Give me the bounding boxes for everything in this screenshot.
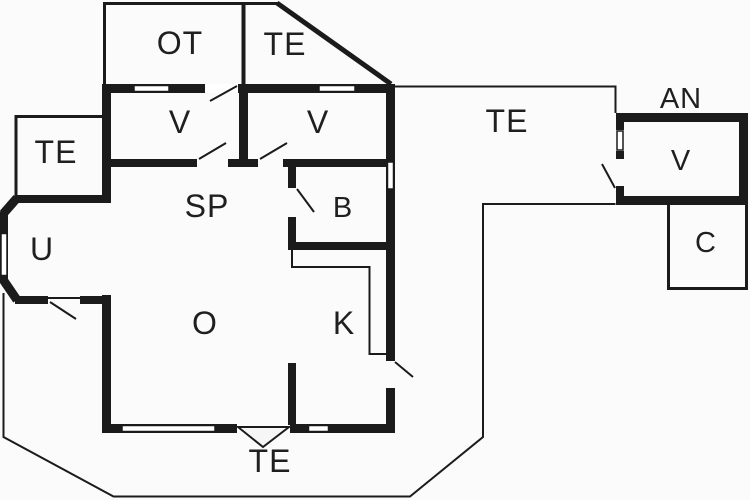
room-label-k: K [333, 305, 355, 341]
wall-right-1 [386, 84, 395, 361]
wall-v-band-1 [102, 159, 197, 167]
window-k-bottom [309, 426, 329, 432]
window-b-right [388, 162, 394, 189]
window-v-right-top [319, 86, 355, 92]
room-label-ot: OT [157, 25, 203, 61]
room-label-o: O [192, 305, 218, 341]
room-label-sp: SP [185, 188, 230, 224]
window-v-left-top [134, 86, 169, 92]
room-label-te-bottom: TE [249, 443, 292, 479]
wall-u-top [15, 195, 111, 203]
wall-an-bottom [616, 196, 748, 205]
wall-v-middle [239, 84, 248, 167]
floor-plan: OT TE V V TE SP B U O K TE TE AN V C [0, 0, 750, 500]
wall-an-left-3 [616, 186, 624, 205]
wall-top-2 [238, 84, 395, 93]
wall-kitchen-stub [288, 363, 296, 425]
room-label-c: C [695, 227, 717, 259]
wall-an-right [739, 113, 748, 205]
room-label-an: AN [660, 83, 702, 115]
room-label-v-right: V [307, 104, 329, 140]
room-label-v-annex: V [671, 145, 691, 177]
room-label-v-left: V [169, 104, 191, 140]
wall-bottom-2 [290, 424, 395, 433]
window-u-left [1, 234, 7, 276]
room-label-te-left: TE [35, 134, 78, 170]
room-label-u: U [30, 231, 54, 267]
room-label-te-main: TE [486, 103, 529, 139]
wall-left-upper [102, 84, 111, 202]
wall-u-bottom-2 [80, 296, 111, 304]
floor-plan-drawing: OT TE V V TE SP B U O K TE TE AN V C [0, 0, 750, 500]
wall-b-bottom [288, 242, 386, 250]
wall-b-left-1 [288, 159, 296, 188]
window-o-bottom [122, 426, 215, 432]
room-label-te-top: TE [264, 26, 307, 62]
wall-an-left-1 [616, 113, 624, 130]
wall-left-lower [102, 295, 111, 433]
wall-an-left-2 [616, 151, 624, 159]
window-an-left [617, 131, 623, 150]
room-label-b: B [333, 192, 353, 224]
wall-v-band-3 [283, 159, 386, 167]
